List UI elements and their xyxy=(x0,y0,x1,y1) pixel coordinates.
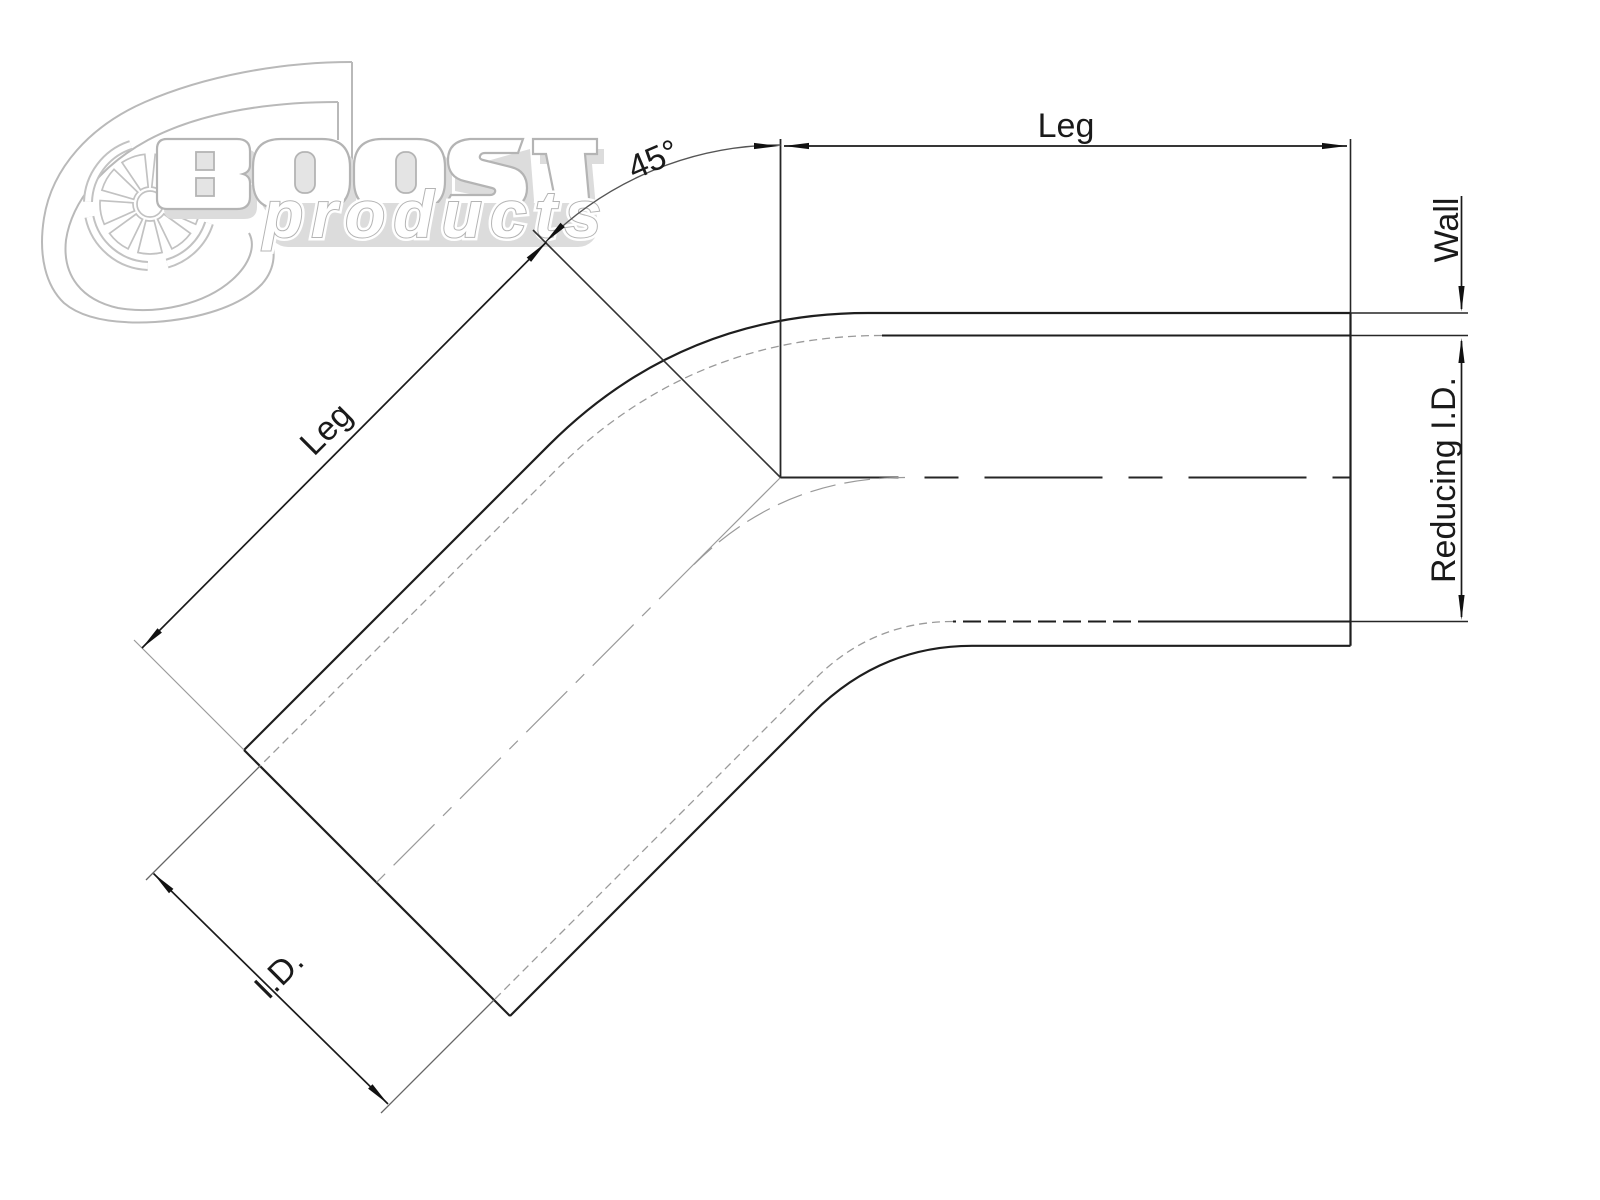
svg-text:Leg: Leg xyxy=(1038,107,1095,145)
svg-text:products: products xyxy=(261,177,609,251)
svg-text:Wall: Wall xyxy=(1428,198,1466,263)
svg-text:Reducing I.D.: Reducing I.D. xyxy=(1425,377,1463,583)
